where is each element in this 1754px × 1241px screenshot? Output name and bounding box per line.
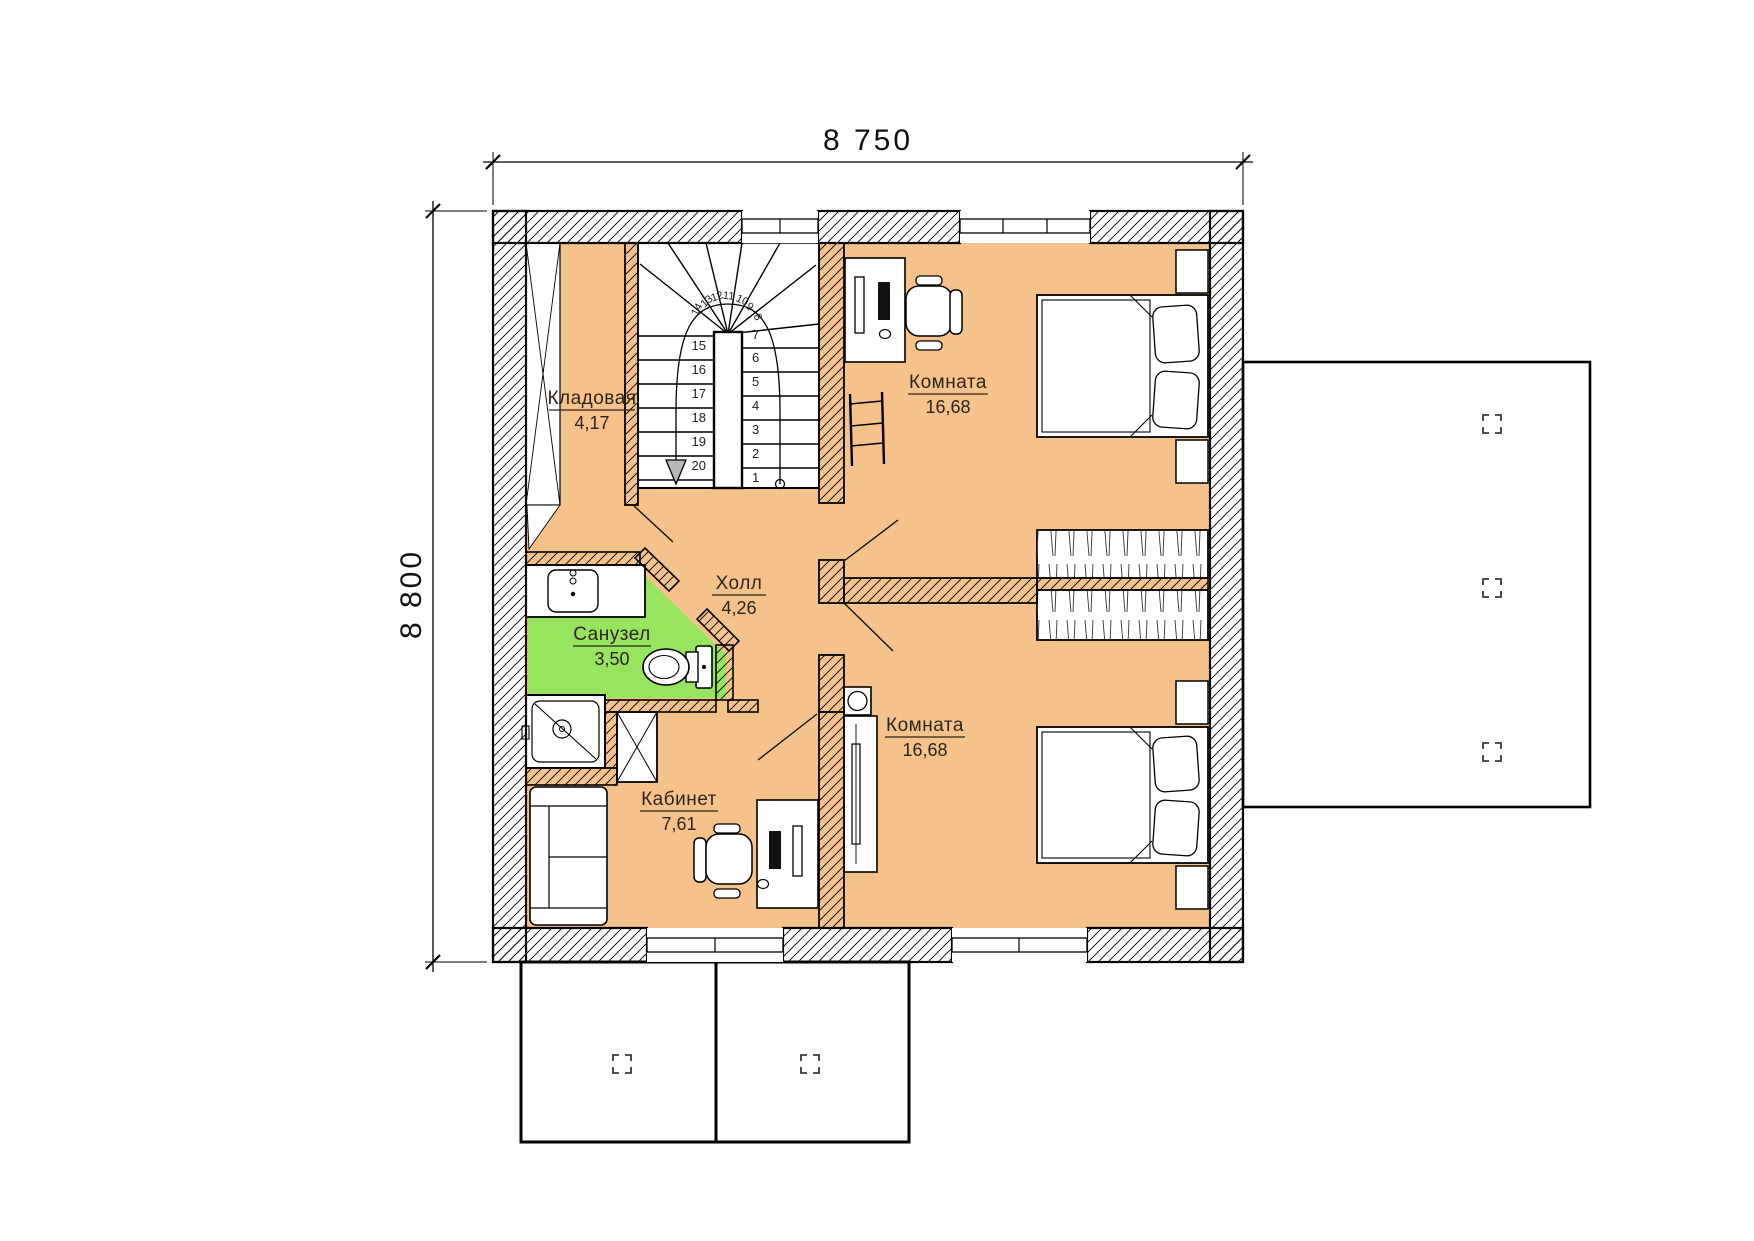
wardrobe-bottom: [1037, 590, 1208, 640]
nightstand: [1176, 866, 1208, 909]
svg-text:4,26: 4,26: [721, 598, 756, 618]
window-bottom-office: [647, 928, 783, 962]
wall-shower-south: [526, 768, 617, 785]
svg-text:Кладовая: Кладовая: [547, 388, 636, 409]
dimension-left: 8 800: [395, 201, 487, 972]
dresser-mirror: [844, 716, 877, 872]
svg-text:4,17: 4,17: [574, 413, 609, 433]
svg-text:3,50: 3,50: [594, 649, 629, 669]
window-bottom-bedroom: [952, 928, 1087, 962]
svg-text:20: 20: [692, 458, 706, 473]
bedroom-top-mouse: [880, 330, 891, 339]
svg-text:16,68: 16,68: [925, 397, 970, 417]
nightstand: [1176, 681, 1208, 724]
wall-bathroom-south: [605, 700, 716, 712]
floor-plan-drawing: 15 16 17 18 19 20 1 2 3 4 5 6 7 8 9 10 1…: [0, 0, 1754, 1241]
wall-bathroom-east: [716, 645, 733, 700]
svg-text:7: 7: [752, 327, 759, 342]
office-keyboard: [769, 831, 781, 869]
svg-text:11: 11: [722, 290, 734, 303]
wall-shower-east: [605, 712, 617, 768]
window-top-stair: [742, 211, 818, 243]
wall-hall-south: [728, 700, 758, 712]
bedroom-top-desk: [845, 258, 905, 362]
svg-text:4: 4: [752, 398, 759, 413]
svg-text:7,61: 7,61: [661, 814, 696, 834]
svg-text:Холл: Холл: [716, 573, 763, 594]
wall-bottom-2: [783, 928, 952, 962]
wall-right: [1210, 211, 1243, 962]
bedroom-top-keyboard: [878, 282, 890, 320]
office-monitor: [793, 826, 802, 876]
terrace-bottom-right: [716, 962, 909, 1142]
sofa: [530, 787, 607, 925]
bedroom-top-monitor: [855, 277, 864, 333]
wardrobe-top: [1037, 530, 1208, 578]
pillow: [1152, 371, 1200, 430]
dimension-top: 8 750: [483, 124, 1253, 205]
office-desk: [757, 800, 818, 908]
svg-text:6: 6: [752, 350, 759, 365]
svg-text:1: 1: [752, 470, 759, 485]
sink-counter: [526, 565, 645, 617]
office-mouse: [758, 880, 769, 889]
svg-text:8 750: 8 750: [823, 124, 913, 157]
nightstand: [1176, 440, 1208, 483]
wall-top-2: [818, 211, 960, 243]
svg-text:8 800: 8 800: [395, 549, 428, 639]
wall-top-1: [493, 211, 742, 243]
terrace-bottom-left: [521, 962, 716, 1142]
svg-text:15: 15: [692, 338, 706, 353]
wall-wardrobe-divider: [1037, 578, 1208, 590]
svg-text:16: 16: [692, 362, 706, 377]
wall-office-east: [819, 712, 844, 928]
svg-text:Кабинет: Кабинет: [641, 789, 717, 810]
balcony-right: [1243, 362, 1590, 807]
pillow: [1152, 305, 1200, 364]
svg-text:5: 5: [752, 374, 759, 389]
floor-plan-page: 15 16 17 18 19 20 1 2 3 4 5 6 7 8 9 10 1…: [0, 0, 1754, 1241]
svg-text:Комната: Комната: [886, 715, 964, 736]
svg-text:2: 2: [752, 446, 759, 461]
svg-text:19: 19: [692, 434, 706, 449]
svg-text:17: 17: [692, 386, 706, 401]
vent-shaft: [617, 712, 657, 782]
shower: [522, 695, 605, 768]
bed-bottom: [1037, 727, 1208, 863]
wall-stair-east: [819, 243, 844, 503]
nightstand: [1176, 250, 1208, 293]
wall-hall-east-mid: [819, 560, 844, 603]
wall-left: [493, 211, 526, 962]
toilet: [643, 646, 712, 688]
wall-hall-east-low: [819, 655, 844, 712]
pillow: [1152, 736, 1200, 793]
svg-text:Комната: Комната: [909, 372, 987, 393]
svg-text:18: 18: [692, 410, 706, 425]
bed-top: [1037, 295, 1208, 437]
window-top-bedroom: [960, 211, 1090, 243]
wall-bathroom-north: [526, 552, 640, 565]
svg-text:16,68: 16,68: [902, 740, 947, 760]
boiler: [844, 687, 871, 715]
wall-stair-west: [625, 243, 638, 505]
wall-bedrooms-divider: [844, 578, 1037, 603]
stair-spine: [714, 332, 742, 488]
pillow: [1152, 800, 1200, 857]
svg-text:3: 3: [752, 422, 759, 437]
svg-text:Санузел: Санузел: [573, 624, 651, 645]
